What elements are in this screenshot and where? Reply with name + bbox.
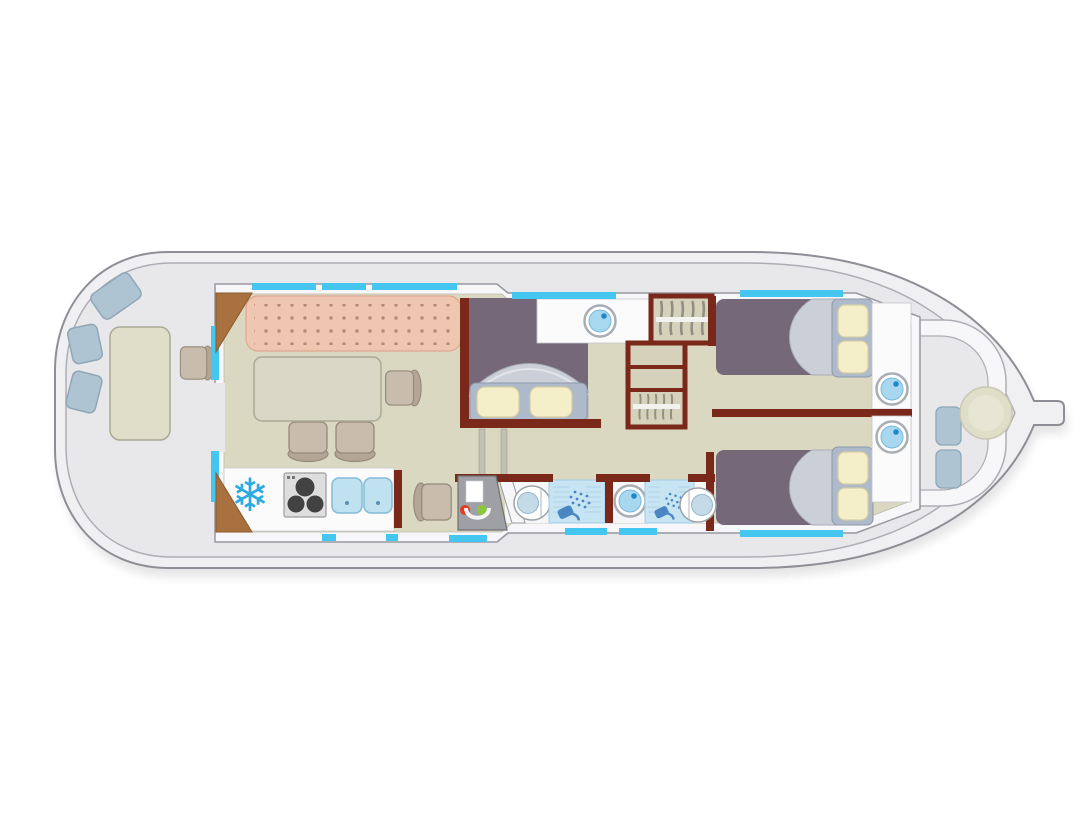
window-strip bbox=[740, 530, 843, 537]
bow-table-top bbox=[968, 395, 1004, 431]
galley-partition bbox=[394, 470, 402, 528]
galley-sink bbox=[332, 478, 362, 513]
burner bbox=[307, 496, 324, 513]
console-screen bbox=[466, 481, 483, 502]
galley-sink bbox=[364, 478, 392, 513]
bathroom-wall bbox=[596, 474, 650, 482]
bed-pillow bbox=[838, 341, 868, 373]
mid-cabin-wall-bottom bbox=[460, 419, 601, 428]
bed-pillow bbox=[838, 488, 868, 520]
washbasin bbox=[877, 422, 908, 453]
burner bbox=[288, 496, 305, 513]
stove-knob bbox=[287, 476, 290, 479]
washbasin bbox=[615, 486, 646, 517]
toilet bbox=[514, 486, 550, 520]
mid-bed-pillow bbox=[530, 387, 572, 417]
floor-plan-canvas: ❄ bbox=[0, 0, 1092, 819]
mid-washbasin-counter bbox=[537, 299, 651, 343]
window-strip bbox=[322, 283, 366, 290]
wardrobe-rail bbox=[656, 317, 708, 322]
bathroom-wall bbox=[688, 474, 715, 482]
bathroom-divider-wall bbox=[605, 478, 613, 523]
dining-table bbox=[254, 357, 381, 421]
side-door-glass bbox=[449, 535, 487, 542]
helm-seat bbox=[414, 483, 452, 521]
window-strip bbox=[740, 290, 843, 297]
window-strip bbox=[322, 534, 336, 541]
aft-deck-table bbox=[110, 327, 170, 440]
mid-cabin-wall-left bbox=[460, 298, 469, 428]
window-strip bbox=[386, 534, 398, 541]
window-strip bbox=[619, 528, 657, 535]
step-rail bbox=[501, 429, 507, 475]
bow-cushion bbox=[936, 450, 961, 488]
sink-drain bbox=[376, 501, 380, 505]
stove-knob bbox=[292, 476, 295, 479]
washbasin bbox=[877, 374, 908, 405]
dining-chair bbox=[386, 370, 422, 406]
dining-chair bbox=[288, 422, 328, 462]
houseboat-floor-plan: ❄ bbox=[0, 0, 1092, 819]
bed-pillow bbox=[838, 305, 868, 337]
toilet bbox=[680, 488, 716, 522]
burner bbox=[296, 478, 315, 497]
sink-drain bbox=[345, 501, 349, 505]
shower-room-fwd bbox=[613, 480, 716, 526]
window-strip bbox=[565, 528, 607, 535]
washbasin bbox=[585, 306, 616, 337]
bed-pillow bbox=[838, 452, 868, 484]
dining-chair bbox=[335, 422, 375, 462]
shelf-unit bbox=[628, 343, 685, 427]
cabin-wall-stub bbox=[708, 296, 716, 346]
window-strip bbox=[252, 283, 316, 290]
wardrobe-rail bbox=[633, 404, 680, 409]
window-strip bbox=[372, 283, 457, 290]
window-strip bbox=[512, 292, 616, 299]
galley: ❄ bbox=[224, 468, 402, 531]
bow-cushion bbox=[936, 407, 961, 445]
saloon-sofa-dots bbox=[254, 304, 453, 345]
aft-deck-cushion bbox=[67, 323, 104, 364]
step-rail bbox=[479, 429, 485, 475]
mid-bed-pillow bbox=[477, 387, 519, 417]
aft-entry-opening bbox=[212, 383, 225, 452]
shower-room-aft bbox=[498, 476, 605, 527]
aft-deck-chair bbox=[180, 346, 214, 380]
